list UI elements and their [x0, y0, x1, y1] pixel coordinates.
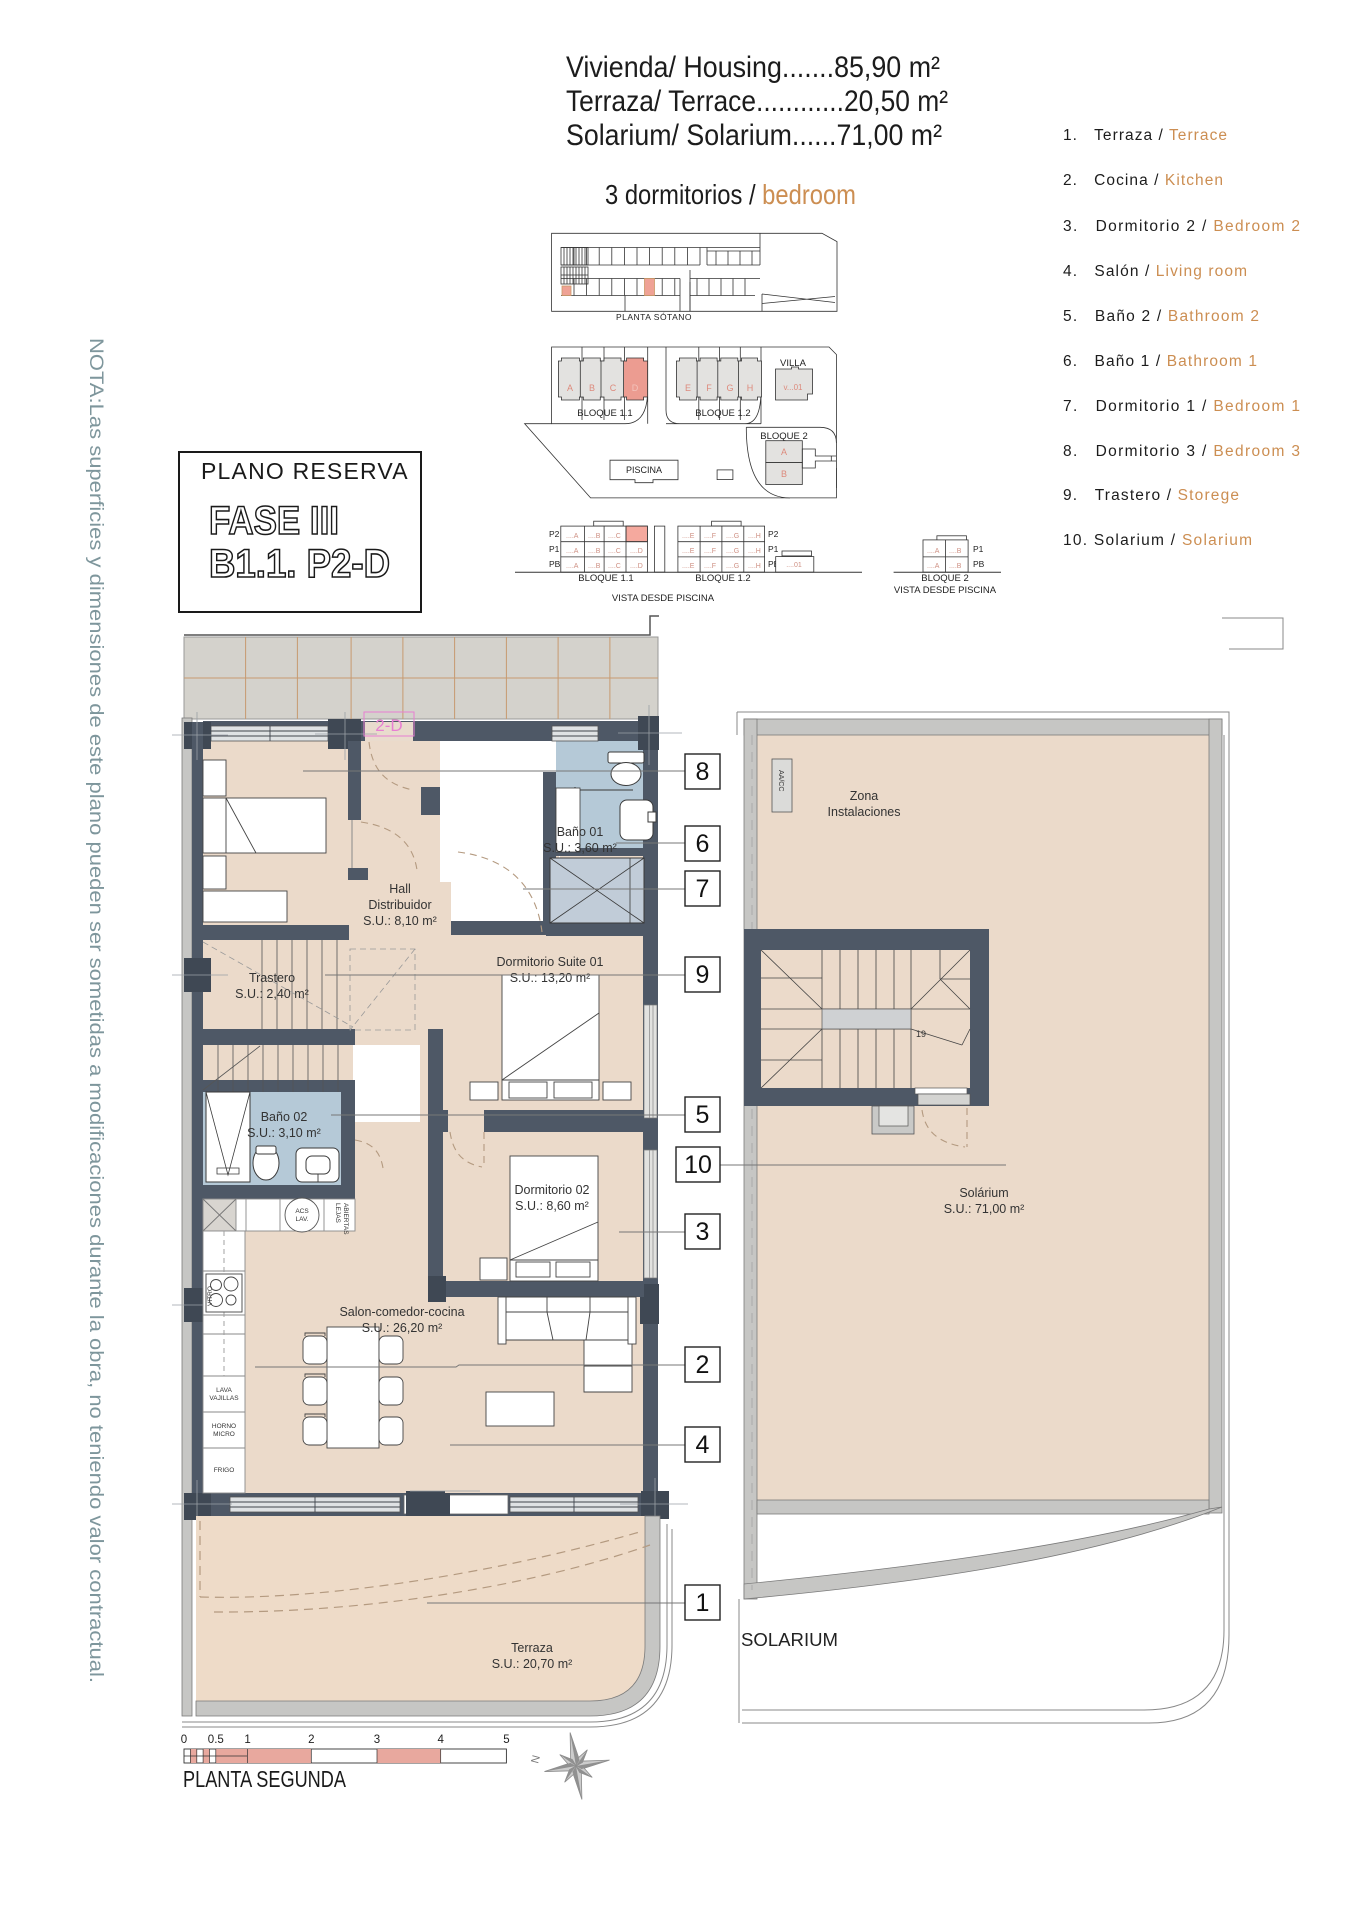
svg-text:Solárium: Solárium: [959, 1186, 1008, 1200]
svg-text:PLANO RESERVA: PLANO RESERVA: [201, 458, 409, 484]
svg-text:PISCINA: PISCINA: [626, 465, 662, 475]
svg-text:7: 7: [696, 875, 710, 903]
svg-text:Dormitorio 02: Dormitorio 02: [514, 1183, 589, 1197]
svg-text:P1: P1: [768, 544, 779, 554]
svg-text:....G: ....G: [726, 548, 739, 555]
svg-text:....H: ....H: [748, 548, 761, 555]
svg-text:S.U.: 2,40 m²: S.U.: 2,40 m²: [235, 987, 309, 1001]
svg-text:BLOQUE 1.1: BLOQUE 1.1: [578, 573, 633, 584]
svg-text:BLOQUE 2: BLOQUE 2: [921, 573, 969, 584]
svg-text:2: 2: [308, 1734, 314, 1746]
svg-text:....H: ....H: [748, 563, 761, 570]
svg-text:3: 3: [696, 1218, 710, 1246]
svg-text:S.U.: 3,10 m²: S.U.: 3,10 m²: [247, 1126, 321, 1140]
svg-text:3. Dormitorio 2 / Bedroom 2: 3. Dormitorio 2 / Bedroom 2: [1063, 218, 1300, 235]
svg-text:5: 5: [696, 1101, 710, 1129]
svg-text:S.U.: 71,00 m²: S.U.: 71,00 m²: [944, 1202, 1025, 1216]
svg-text:S.U.: 20,70 m²: S.U.: 20,70 m²: [492, 1657, 573, 1671]
svg-text:HORNO: HORNO: [212, 1423, 236, 1430]
svg-text:BLOQUE 1.1: BLOQUE 1.1: [577, 408, 632, 419]
svg-text:G: G: [726, 383, 733, 393]
svg-text:2-D: 2-D: [375, 716, 402, 735]
svg-text:S.U.: 26,20 m²: S.U.: 26,20 m²: [362, 1321, 443, 1335]
svg-text:FASE III: FASE III: [209, 499, 339, 543]
svg-text:1: 1: [696, 1589, 710, 1617]
svg-text:4. Salón / Living room: 4. Salón / Living room: [1063, 263, 1247, 280]
svg-text:P2: P2: [768, 529, 779, 539]
svg-text:....E: ....E: [682, 563, 695, 570]
svg-text:....F: ....F: [704, 548, 716, 555]
svg-text:Distribuidor: Distribuidor: [368, 898, 431, 912]
svg-text:3: 3: [374, 1734, 380, 1746]
svg-text:BLOQUE 1.2: BLOQUE 1.2: [695, 573, 750, 584]
svg-text:....F: ....F: [704, 533, 716, 540]
svg-text:....A: ....A: [566, 548, 579, 555]
svg-text:....01: ....01: [786, 562, 802, 569]
svg-text:2: 2: [696, 1351, 710, 1379]
svg-text:MICRO: MICRO: [213, 1431, 235, 1438]
svg-text:10: 10: [684, 1151, 712, 1179]
svg-text:PLANTA SEGUNDA: PLANTA SEGUNDA: [183, 1766, 347, 1792]
svg-text:....G: ....G: [726, 533, 739, 540]
svg-text:....A: ....A: [566, 533, 579, 540]
svg-text:BLOQUE 1.2: BLOQUE 1.2: [695, 408, 750, 419]
svg-text:LEJAS: LEJAS: [334, 1203, 341, 1224]
svg-text:LAVA: LAVA: [216, 1387, 232, 1394]
svg-text:....B: ....B: [949, 563, 962, 570]
svg-text:A: A: [567, 383, 573, 393]
svg-text:ABIERTAS: ABIERTAS: [342, 1203, 349, 1235]
svg-text:A: A: [781, 447, 787, 457]
svg-text:Trastero: Trastero: [249, 971, 295, 985]
svg-text:B: B: [781, 469, 787, 479]
svg-text:H: H: [747, 383, 754, 393]
svg-text:PB: PB: [973, 559, 985, 569]
svg-text:3 dormitorios / bedroom: 3 dormitorios / bedroom: [605, 179, 856, 210]
svg-text:P1: P1: [973, 544, 984, 554]
svg-text:LAV.: LAV.: [295, 1216, 308, 1223]
svg-text:....F: ....F: [704, 563, 716, 570]
svg-text:....B: ....B: [588, 548, 601, 555]
svg-text:Terraza/ Terrace............20: Terraza/ Terrace............20,50 m²: [566, 85, 948, 118]
svg-text:....A: ....A: [927, 548, 940, 555]
svg-text:1: 1: [244, 1734, 250, 1746]
svg-text:10. Solarium / Solarium: 10. Solarium / Solarium: [1063, 532, 1252, 549]
svg-text:S.U.: 3,60 m²: S.U.: 3,60 m²: [543, 841, 617, 855]
svg-text:P2: P2: [549, 529, 560, 539]
svg-text:....B: ....B: [588, 533, 601, 540]
svg-text:5: 5: [503, 1734, 509, 1746]
svg-text:S.U.: 8,60 m²: S.U.: 8,60 m²: [515, 1199, 589, 1213]
svg-text:Dormitorio Suite 01: Dormitorio Suite 01: [497, 955, 604, 969]
svg-text:VAJILLAS: VAJILLAS: [209, 1395, 239, 1402]
svg-text:ACS: ACS: [295, 1208, 309, 1215]
svg-text:....D: ....D: [630, 548, 643, 555]
svg-text:C: C: [610, 383, 617, 393]
svg-text:9. Trastero / Storege: 9. Trastero / Storege: [1063, 487, 1239, 504]
svg-text:F: F: [706, 383, 712, 393]
svg-text:2. Cocina / Kitchen: 2. Cocina / Kitchen: [1063, 172, 1223, 189]
svg-text:Salon-comedor-cocina: Salon-comedor-cocina: [339, 1305, 464, 1319]
svg-text:9: 9: [696, 961, 710, 989]
svg-text:8: 8: [696, 758, 710, 786]
svg-text:1. Terraza / Terrace: 1. Terraza / Terrace: [1063, 127, 1227, 144]
svg-text:Zona: Zona: [850, 789, 879, 803]
svg-text:4: 4: [437, 1734, 444, 1746]
svg-text:....C: ....C: [608, 563, 621, 570]
svg-text:Vivienda/ Housing.......85,90: Vivienda/ Housing.......85,90 m²: [566, 51, 940, 84]
svg-text:Baño 01: Baño 01: [557, 825, 604, 839]
svg-text:D: D: [632, 383, 639, 393]
svg-text:FRIGO: FRIGO: [214, 1467, 235, 1474]
svg-text:S.U.: 8,10 m²: S.U.: 8,10 m²: [363, 914, 437, 928]
svg-text:NOTA:Las superficies y dimensi: NOTA:Las superficies y dimensiones de es…: [85, 338, 107, 1683]
svg-text:8. Dormitorio 3 / Bedroom 3: 8. Dormitorio 3 / Bedroom 3: [1063, 443, 1300, 460]
svg-text:P1: P1: [549, 544, 560, 554]
svg-text:....E: ....E: [682, 533, 695, 540]
svg-text:S.U.: 13,20 m²: S.U.: 13,20 m²: [510, 971, 591, 985]
svg-text:....A: ....A: [566, 563, 579, 570]
svg-text:Hall: Hall: [389, 882, 411, 896]
svg-text:SOLARIUM: SOLARIUM: [741, 1629, 838, 1650]
svg-text:Instalaciones: Instalaciones: [828, 805, 901, 819]
svg-text:PB: PB: [549, 559, 561, 569]
svg-text:v...01: v...01: [784, 383, 804, 392]
svg-text:VISTA DESDE PISCINA: VISTA DESDE PISCINA: [612, 593, 715, 604]
svg-text:....A: ....A: [927, 563, 940, 570]
svg-text:Solarium/ Solarium......71,00: Solarium/ Solarium......71,00 m²: [566, 119, 942, 152]
svg-text:4: 4: [696, 1431, 710, 1459]
svg-text:....B: ....B: [588, 563, 601, 570]
svg-text:PLANTA SÓTANO: PLANTA SÓTANO: [616, 312, 692, 322]
svg-text:....D: ....D: [630, 563, 643, 570]
svg-text:6: 6: [696, 830, 710, 858]
svg-text:7. Dormitorio 1 / Bedroom 1: 7. Dormitorio 1 / Bedroom 1: [1063, 398, 1300, 415]
svg-text:AA/CC: AA/CC: [777, 770, 784, 791]
svg-text:....E: ....E: [682, 548, 695, 555]
svg-text:Baño 02: Baño 02: [261, 1110, 308, 1124]
svg-text:....C: ....C: [608, 533, 621, 540]
svg-text:VISTA DESDE PISCINA: VISTA DESDE PISCINA: [894, 585, 997, 596]
svg-text:VITRO: VITRO: [207, 1286, 214, 1306]
svg-text:0: 0: [181, 1734, 187, 1746]
svg-text:E: E: [685, 383, 691, 393]
svg-text:....C: ....C: [608, 548, 621, 555]
svg-text:B: B: [589, 383, 595, 393]
svg-text:0.5: 0.5: [208, 1734, 224, 1746]
svg-text:19: 19: [916, 1029, 926, 1039]
svg-text:B1.1. P2-D: B1.1. P2-D: [209, 542, 390, 586]
svg-text:Terraza: Terraza: [511, 1641, 553, 1655]
svg-text:....H: ....H: [748, 533, 761, 540]
svg-text:....G: ....G: [726, 563, 739, 570]
svg-text:....B: ....B: [949, 548, 962, 555]
